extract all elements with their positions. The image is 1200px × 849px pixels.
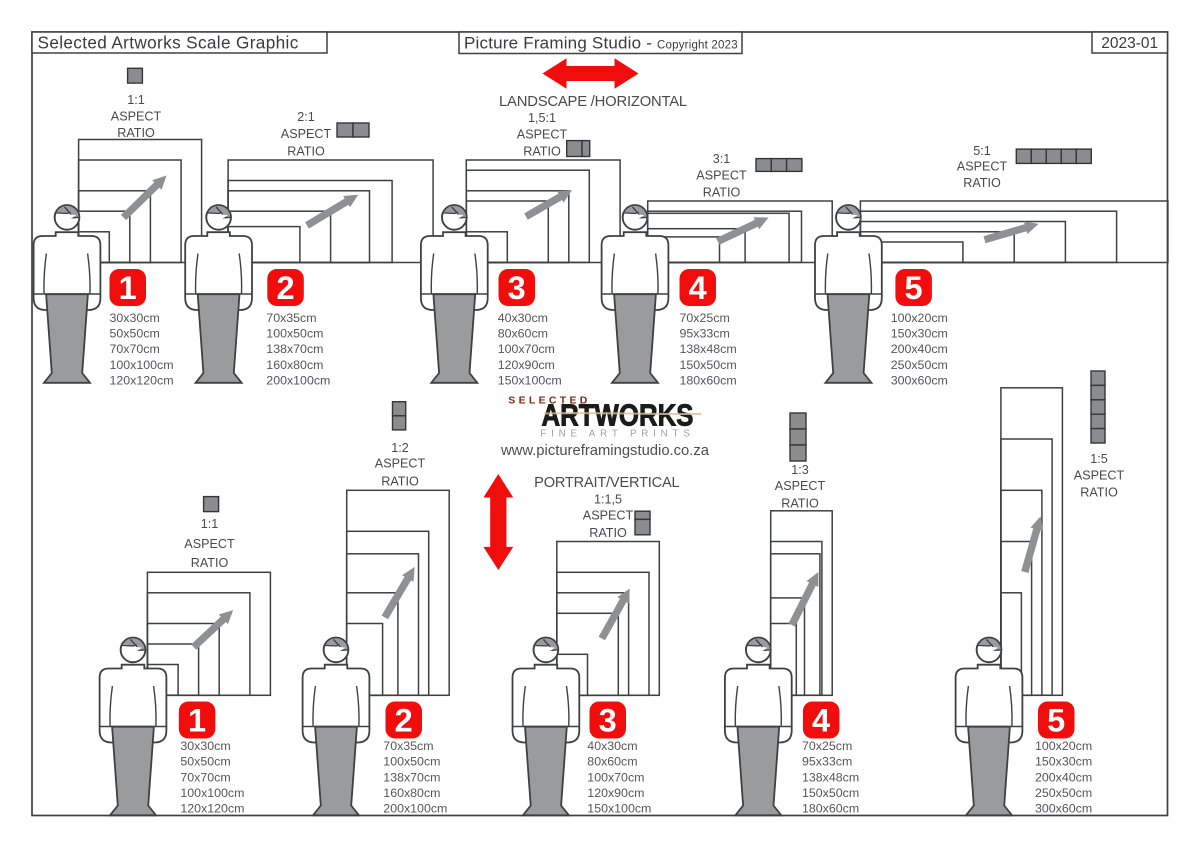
svg-text:80x60cm: 80x60cm [498, 327, 548, 341]
svg-text:5:1: 5:1 [973, 144, 991, 158]
svg-text:2:1: 2:1 [297, 110, 315, 124]
svg-text:LANDSCAPE /HORIZONTAL: LANDSCAPE /HORIZONTAL [499, 94, 687, 110]
svg-text:2: 2 [395, 703, 413, 739]
svg-text:80x60cm: 80x60cm [587, 755, 637, 769]
svg-text:ASPECT: ASPECT [775, 479, 826, 493]
svg-text:100x50cm: 100x50cm [266, 327, 323, 341]
svg-text:200x100cm: 200x100cm [266, 374, 330, 388]
svg-text:1: 1 [119, 270, 137, 306]
svg-text:RATIO: RATIO [117, 126, 155, 140]
svg-text:200x100cm: 200x100cm [383, 802, 447, 816]
svg-text:160x80cm: 160x80cm [266, 358, 323, 372]
svg-text:RATIO: RATIO [1080, 486, 1118, 500]
svg-text:30x30cm: 30x30cm [180, 739, 230, 753]
svg-text:1: 1 [188, 703, 206, 739]
svg-text:ASPECT: ASPECT [517, 128, 568, 142]
svg-text:95x33cm: 95x33cm [680, 327, 730, 341]
svg-text:70x35cm: 70x35cm [383, 739, 433, 753]
svg-text:4: 4 [812, 703, 830, 739]
svg-text:RATIO: RATIO [523, 145, 561, 159]
svg-text:70x25cm: 70x25cm [680, 311, 730, 325]
svg-text:ASPECT: ASPECT [1074, 469, 1125, 483]
svg-text:120x120cm: 120x120cm [180, 802, 244, 816]
svg-text:50x50cm: 50x50cm [110, 327, 160, 341]
svg-text:5: 5 [1047, 703, 1065, 739]
svg-text:RATIO: RATIO [589, 526, 627, 540]
svg-text:150x50cm: 150x50cm [680, 358, 737, 372]
svg-text:70x35cm: 70x35cm [266, 311, 316, 325]
svg-text:ARTWORKS: ARTWORKS [542, 398, 694, 433]
svg-text:100x20cm: 100x20cm [1035, 739, 1092, 753]
svg-text:250x50cm: 250x50cm [891, 358, 948, 372]
svg-text:RATIO: RATIO [781, 497, 819, 511]
svg-text:3: 3 [508, 270, 526, 306]
svg-text:138x48cm: 138x48cm [802, 770, 859, 784]
svg-text:4: 4 [689, 270, 707, 306]
svg-text:150x30cm: 150x30cm [1035, 755, 1092, 769]
svg-text:1:1: 1:1 [127, 93, 145, 107]
svg-text:120x90cm: 120x90cm [498, 358, 555, 372]
svg-text:www.pictureframingstudio.co.za: www.pictureframingstudio.co.za [500, 443, 710, 459]
svg-text:160x80cm: 160x80cm [383, 786, 440, 800]
svg-text:50x50cm: 50x50cm [180, 755, 230, 769]
svg-text:Selected Artworks Scale Graphi: Selected Artworks Scale Graphic [38, 32, 299, 52]
svg-text:RATIO: RATIO [287, 145, 325, 159]
svg-text:40x30cm: 40x30cm [498, 311, 548, 325]
svg-text:PORTRAIT/VERTICAL: PORTRAIT/VERTICAL [534, 475, 679, 491]
svg-text:FINE ART PRINTS: FINE ART PRINTS [540, 429, 694, 440]
svg-text:95x33cm: 95x33cm [802, 755, 852, 769]
svg-text:1:2: 1:2 [391, 441, 409, 455]
svg-text:2: 2 [276, 270, 294, 306]
svg-text:250x50cm: 250x50cm [1035, 786, 1092, 800]
svg-text:70x70cm: 70x70cm [110, 342, 160, 356]
svg-text:40x30cm: 40x30cm [587, 739, 637, 753]
svg-text:180x60cm: 180x60cm [680, 374, 737, 388]
svg-text:ASPECT: ASPECT [957, 160, 1008, 174]
svg-text:70x25cm: 70x25cm [802, 739, 852, 753]
svg-text:ASPECT: ASPECT [111, 110, 162, 124]
svg-text:1:1: 1:1 [201, 517, 219, 531]
svg-text:100x70cm: 100x70cm [498, 342, 555, 356]
svg-text:150x30cm: 150x30cm [891, 327, 948, 341]
svg-text:ASPECT: ASPECT [281, 127, 332, 141]
svg-text:300x60cm: 300x60cm [1035, 802, 1092, 816]
svg-text:1,5:1: 1,5:1 [528, 111, 556, 125]
svg-text:100x20cm: 100x20cm [891, 311, 948, 325]
svg-text:100x100cm: 100x100cm [110, 358, 174, 372]
svg-text:120x120cm: 120x120cm [110, 374, 174, 388]
svg-text:70x70cm: 70x70cm [180, 770, 230, 784]
svg-text:138x70cm: 138x70cm [383, 770, 440, 784]
svg-text:150x100cm: 150x100cm [498, 374, 562, 388]
svg-text:3:1: 3:1 [713, 152, 731, 166]
svg-text:138x70cm: 138x70cm [266, 342, 323, 356]
svg-text:ASPECT: ASPECT [184, 537, 235, 551]
svg-text:150x100cm: 150x100cm [587, 802, 651, 816]
svg-text:3: 3 [599, 703, 617, 739]
svg-text:2023-01: 2023-01 [1101, 35, 1158, 52]
svg-text:300x60cm: 300x60cm [891, 374, 948, 388]
svg-text:120x90cm: 120x90cm [587, 786, 644, 800]
svg-text:ASPECT: ASPECT [696, 169, 747, 183]
svg-text:100x50cm: 100x50cm [383, 755, 440, 769]
svg-text:200x40cm: 200x40cm [891, 342, 948, 356]
svg-text:RATIO: RATIO [191, 556, 229, 570]
svg-text:RATIO: RATIO [381, 475, 419, 489]
svg-text:ASPECT: ASPECT [583, 509, 634, 523]
svg-text:1:1,5: 1:1,5 [594, 493, 622, 507]
svg-text:RATIO: RATIO [703, 186, 741, 200]
svg-text:5: 5 [905, 270, 923, 306]
svg-text:100x100cm: 100x100cm [180, 786, 244, 800]
svg-text:200x40cm: 200x40cm [1035, 770, 1092, 784]
svg-text:138x48cm: 138x48cm [680, 342, 737, 356]
svg-text:ASPECT: ASPECT [375, 457, 426, 471]
svg-text:RATIO: RATIO [963, 176, 1001, 190]
svg-text:150x50cm: 150x50cm [802, 786, 859, 800]
svg-text:1:3: 1:3 [791, 463, 809, 477]
svg-text:30x30cm: 30x30cm [110, 311, 160, 325]
svg-text:100x70cm: 100x70cm [587, 770, 644, 784]
svg-text:1:5: 1:5 [1090, 452, 1108, 466]
svg-text:180x60cm: 180x60cm [802, 802, 859, 816]
